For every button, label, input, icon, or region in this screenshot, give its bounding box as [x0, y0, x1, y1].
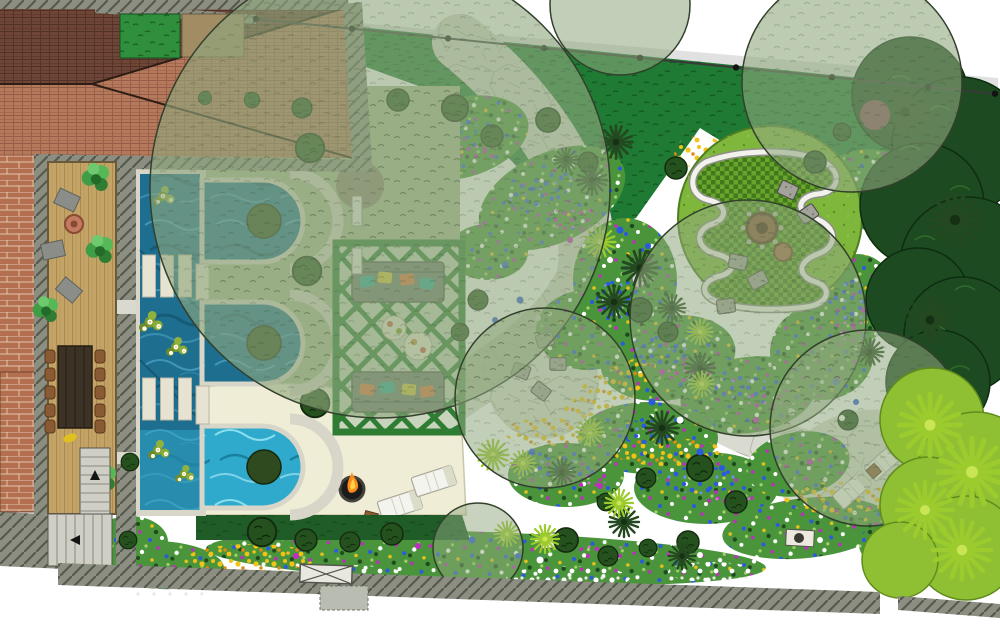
plan-canvas — [0, 0, 1000, 627]
garden-gate — [300, 564, 353, 584]
wall-band-right — [116, 158, 136, 566]
gate-step — [320, 586, 368, 610]
hedge-texture — [196, 515, 470, 540]
wall-opening — [116, 300, 136, 314]
rill-water-bright — [140, 430, 200, 510]
garden-masterplan — [0, 0, 1000, 627]
wall-band-left — [34, 156, 48, 514]
brick-wing-roof — [0, 156, 34, 374]
front-wall-east — [898, 596, 1000, 618]
